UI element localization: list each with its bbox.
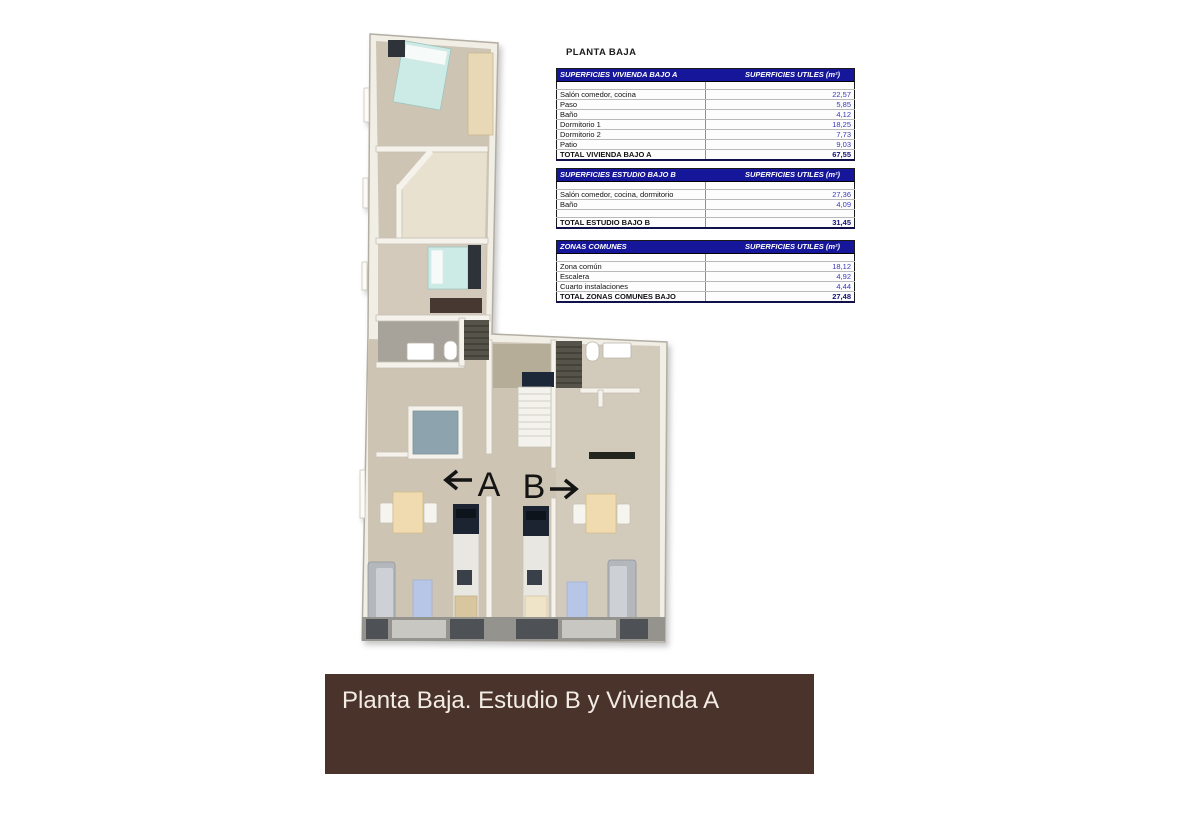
unit-a-label: A — [478, 466, 501, 504]
table-row: Cuarto instalaciones4,44 — [557, 282, 855, 292]
spacer-row — [557, 254, 855, 262]
table-total-row: TOTAL ESTUDIO BAJO B31,45 — [557, 218, 855, 229]
sink-icon — [407, 343, 434, 360]
panel-title: PLANTA BAJA — [566, 47, 856, 58]
window-icon — [360, 470, 365, 518]
table-zonas-comunes: ZONAS COMUNES SUPERFICIES UTILES (m²) Zo… — [556, 240, 855, 303]
row-value: 22,57 — [706, 90, 855, 100]
table-total-row: TOTAL VIVIENDA BAJO A67,55 — [557, 150, 855, 161]
row-value: 18,25 — [706, 120, 855, 130]
total-label: TOTAL VIVIENDA BAJO A — [557, 150, 706, 161]
table-header-left: SUPERFICIES VIVIENDA BAJO A — [560, 71, 677, 79]
row-label: Cuarto instalaciones — [557, 282, 706, 292]
total-label: TOTAL ZONAS COMUNES BAJO — [557, 292, 706, 303]
facade-band — [362, 617, 665, 641]
unit-b-label: B — [523, 468, 546, 506]
spacer-row — [557, 82, 855, 90]
headboard-icon — [388, 40, 405, 57]
row-label: Salón comedor, cocina — [557, 90, 706, 100]
window-icon — [364, 88, 369, 122]
staircase-icon — [518, 387, 551, 447]
row-value: 27,36 — [706, 190, 855, 200]
row-value: 18,12 — [706, 262, 855, 272]
plan-sheet: A B PLANTA BAJA SUPERFICIES VIVIENDA BAJ… — [0, 0, 1180, 840]
sink-icon — [603, 343, 631, 358]
total-value: 67,55 — [706, 150, 855, 161]
stairs-dark-icon — [556, 341, 582, 388]
row-value: 9,03 — [706, 140, 855, 150]
table-header: ZONAS COMUNES SUPERFICIES UTILES (m²) — [557, 241, 855, 254]
patio — [408, 406, 463, 459]
row-label: Paso — [557, 100, 706, 110]
table-row: Salón comedor, cocina, dormitorio27,36 — [557, 190, 855, 200]
row-value: 5,85 — [706, 100, 855, 110]
table-header-right: SUPERFICIES UTILES (m²) — [745, 171, 840, 179]
table-header: SUPERFICIES VIVIENDA BAJO A SUPERFICIES … — [557, 69, 855, 82]
spacer-row — [557, 210, 855, 218]
table-row: Patio9,03 — [557, 140, 855, 150]
table-row: Baño4,09 — [557, 200, 855, 210]
total-label: TOTAL ESTUDIO BAJO B — [557, 218, 706, 229]
table-header-right: SUPERFICIES UTILES (m²) — [745, 243, 840, 251]
table-row: Baño4,12 — [557, 110, 855, 120]
row-value: 4,44 — [706, 282, 855, 292]
table-header-right: SUPERFICIES UTILES (m²) — [745, 71, 840, 79]
stair-landing — [522, 372, 554, 387]
row-label: Baño — [557, 110, 706, 120]
row-value: 4,12 — [706, 110, 855, 120]
table-row: Paso5,85 — [557, 100, 855, 110]
spacer-row — [557, 182, 855, 190]
table-row: Escalera4,92 — [557, 272, 855, 282]
table-row: Zona común18,12 — [557, 262, 855, 272]
total-value: 27,48 — [706, 292, 855, 303]
dresser-icon — [430, 298, 482, 313]
total-value: 31,45 — [706, 218, 855, 229]
table-row: Salón comedor, cocina22,57 — [557, 90, 855, 100]
row-label: Salón comedor, cocina, dormitorio — [557, 190, 706, 200]
wardrobe-icon — [468, 53, 493, 135]
table-row: Dormitorio 118,25 — [557, 120, 855, 130]
toilet-icon — [444, 341, 457, 360]
areas-panel: PLANTA BAJA SUPERFICIES VIVIENDA BAJO A … — [556, 47, 856, 303]
table-row: Dormitorio 27,73 — [557, 130, 855, 140]
table-header-left: SUPERFICIES ESTUDIO BAJO B — [560, 171, 676, 179]
row-label: Dormitorio 2 — [557, 130, 706, 140]
row-label: Baño — [557, 200, 706, 210]
table-header-left: ZONAS COMUNES — [560, 243, 627, 251]
window-icon — [362, 262, 367, 290]
row-value: 4,92 — [706, 272, 855, 282]
row-label: Escalera — [557, 272, 706, 282]
row-label: Patio — [557, 140, 706, 150]
row-value: 7,73 — [706, 130, 855, 140]
row-value: 4,09 — [706, 200, 855, 210]
row-label: Dormitorio 1 — [557, 120, 706, 130]
bench-icon — [589, 452, 635, 459]
table-vivienda-bajo-a: SUPERFICIES VIVIENDA BAJO A SUPERFICIES … — [556, 68, 855, 161]
caption-text: Planta Baja. Estudio B y Vivienda A — [342, 687, 719, 714]
caption-banner: Planta Baja. Estudio B y Vivienda A — [325, 674, 814, 774]
toilet-icon — [586, 342, 599, 361]
window-icon — [363, 178, 368, 208]
row-label: Zona común — [557, 262, 706, 272]
table-total-row: TOTAL ZONAS COMUNES BAJO27,48 — [557, 292, 855, 303]
table-estudio-bajo-b: SUPERFICIES ESTUDIO BAJO B SUPERFICIES U… — [556, 168, 855, 229]
stairs-dark-icon — [464, 320, 489, 360]
table-header: SUPERFICIES ESTUDIO BAJO B SUPERFICIES U… — [557, 169, 855, 182]
bed-icon — [428, 245, 481, 289]
